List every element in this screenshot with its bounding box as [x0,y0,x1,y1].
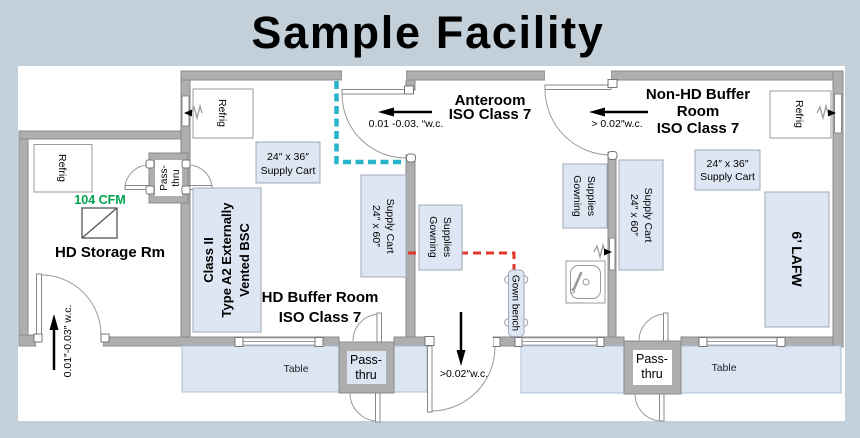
svg-text:Gowning: Gowning [571,175,583,217]
svg-text:Table: Table [283,363,308,375]
svg-text:>0.02″w.c.: >0.02″w.c. [440,368,488,380]
svg-text:ISO Class 7: ISO Class 7 [279,309,362,326]
svg-text:0.01″-0.03″ w.c.: 0.01″-0.03″ w.c. [62,305,74,378]
svg-text:Gown bench: Gown bench [510,275,521,331]
svg-text:thru: thru [641,367,663,381]
svg-text:Pass-: Pass- [159,165,170,191]
svg-text:Refrig: Refrig [793,100,805,128]
svg-text:HD Storage Rm: HD Storage Rm [55,244,165,261]
svg-text:Supply Cart: Supply Cart [700,171,755,183]
svg-text:24″ x 60″: 24″ x 60″ [628,194,640,236]
svg-text:Class II: Class II [201,237,216,283]
svg-text:Refrig: Refrig [56,154,68,182]
svg-text:Vented BSC: Vented BSC [237,223,252,297]
svg-text:thru: thru [171,169,182,186]
svg-text:Pass-: Pass- [636,352,668,366]
svg-text:0.01 -0.03. “w.c.: 0.01 -0.03. “w.c. [369,118,444,130]
svg-text:Supplies: Supplies [441,217,453,257]
svg-text:Type A2 Externally: Type A2 Externally [219,202,234,318]
svg-text:thru: thru [355,368,377,382]
svg-text:ISO Class 7: ISO Class 7 [449,106,532,123]
svg-text:Supply Cart: Supply Cart [261,165,316,177]
svg-text:Supply Cart: Supply Cart [642,188,654,243]
svg-text:Supply Cart: Supply Cart [384,199,396,254]
svg-text:24″ x 36″: 24″ x 36″ [707,158,749,170]
svg-text:Gowning: Gowning [427,216,439,258]
svg-text:24″ x 36″: 24″ x 36″ [267,151,309,163]
svg-text:24″ x 60″: 24″ x 60″ [370,205,382,247]
svg-text:Pass-: Pass- [350,353,382,367]
svg-text:Table: Table [711,362,736,374]
svg-text:6’ LAFW: 6’ LAFW [789,231,805,287]
svg-text:ISO Class 7: ISO Class 7 [657,120,740,137]
svg-text:Non-HD Buffer: Non-HD Buffer [646,86,750,103]
svg-text:HD Buffer Room: HD Buffer Room [262,289,379,306]
svg-text:Room: Room [677,103,720,120]
svg-text:Supplies: Supplies [585,176,597,216]
svg-text:Sample Facility: Sample Facility [251,7,604,58]
svg-text:104 CFM: 104 CFM [74,193,125,207]
svg-text:> 0.02″w.c.: > 0.02″w.c. [591,118,642,130]
svg-text:Refrig: Refrig [216,99,228,127]
